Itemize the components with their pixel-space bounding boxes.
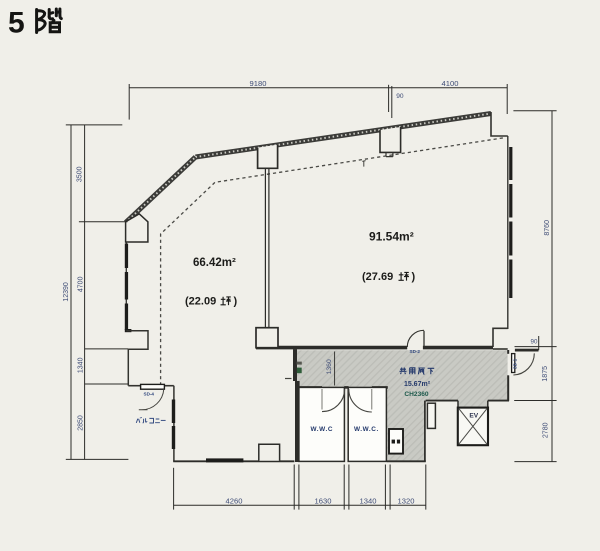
svg-text:SD-2: SD-2 (410, 349, 421, 354)
svg-text:1630: 1630 (315, 497, 332, 506)
svg-text:90: 90 (396, 93, 404, 100)
svg-text:90: 90 (531, 339, 538, 346)
svg-text:4260: 4260 (226, 497, 243, 506)
svg-text:2780: 2780 (542, 422, 549, 438)
svg-text:CH2360: CH2360 (404, 391, 429, 398)
svg-text:66.42m²: 66.42m² (193, 257, 236, 269)
svg-text:): ) (234, 296, 238, 308)
svg-text:4700: 4700 (77, 276, 84, 292)
svg-text:W.W.C.: W.W.C. (354, 426, 379, 433)
svg-text:8760: 8760 (544, 220, 551, 236)
svg-text:3500: 3500 (76, 166, 83, 182)
svg-text:EV: EV (469, 412, 478, 419)
svg-text:SD-4: SD-4 (144, 392, 155, 397)
svg-text:SD-1: SD-1 (513, 358, 518, 369)
svg-text:1320: 1320 (398, 497, 415, 506)
svg-text:1875: 1875 (542, 366, 549, 382)
svg-text:(22.09: (22.09 (185, 296, 216, 308)
svg-text:91.54m²: 91.54m² (369, 230, 414, 244)
svg-text:15.67m²: 15.67m² (404, 381, 431, 388)
svg-text:): ) (412, 271, 416, 283)
svg-text:W.W.C: W.W.C (311, 426, 334, 433)
svg-text:4100: 4100 (442, 79, 459, 88)
svg-text:1340: 1340 (77, 357, 84, 373)
svg-text:1360: 1360 (326, 359, 333, 374)
svg-text:9180: 9180 (250, 79, 267, 88)
svg-text:5: 5 (8, 7, 25, 40)
svg-text:(27.69: (27.69 (362, 271, 393, 283)
svg-text:2850: 2850 (77, 415, 84, 431)
svg-text:1340: 1340 (360, 497, 377, 506)
svg-text:12390: 12390 (63, 282, 70, 302)
